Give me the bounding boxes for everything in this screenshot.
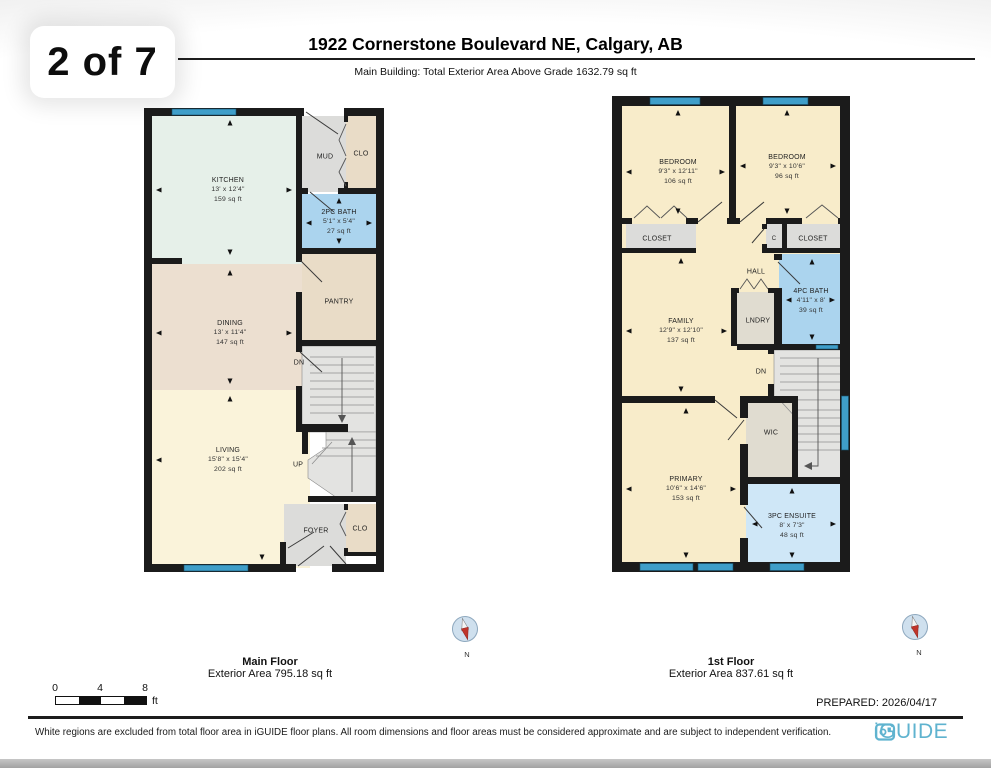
room-label-bedroom-left: BEDROOM 9'3" x 12'11" 106 sq ft — [658, 158, 697, 186]
iguide-logo: iGUIDE — [874, 720, 948, 744]
room-label-laundry: LNDRY — [746, 316, 771, 325]
room-label-family: FAMILY 12'9" x 12'10" 137 sq ft — [659, 317, 703, 345]
main-floor-caption: Main Floor Exterior Area 795.18 sq ft — [208, 656, 332, 680]
room-label-dining: DINING 13' x 11'4" 147 sq ft — [214, 319, 247, 347]
room-label-4pc-bath: 4PC BATH 4'11" x 8' 39 sq ft — [793, 287, 828, 315]
page-title: 1922 Cornerstone Boulevard NE, Calgary, … — [0, 34, 991, 55]
room-label-closet-right: CLOSET — [798, 234, 827, 243]
room-label-clo-bottom: CLO — [353, 524, 368, 533]
room-label-pantry: PANTRY — [325, 297, 354, 306]
page-subtitle: Main Building: Total Exterior Area Above… — [0, 66, 991, 78]
room-label-wic: WIC — [764, 428, 778, 437]
room-label-closet-left: CLOSET — [642, 234, 671, 243]
room-label-foyer: FOYER — [303, 526, 328, 535]
room-label-bedroom-right: BEDROOM 9'3" x 10'6" 96 sq ft — [768, 153, 806, 181]
scale-bar-unit: ft — [152, 695, 158, 707]
stairs-dn-label-main: DN — [294, 358, 305, 367]
room-label-living: LIVING 15'8" x 15'4" 202 sq ft — [208, 446, 248, 474]
first-floor-plan — [608, 92, 858, 588]
room-label-clo-top: CLO — [354, 149, 369, 158]
room-label-closet-small: C — [772, 235, 777, 243]
room-label-primary: PRIMARY 10'6" x 14'6" 153 sq ft — [666, 475, 706, 503]
room-label-2pc-bath: 2PC BATH 5'1" x 5'4" 27 sq ft — [321, 208, 356, 236]
iguide-logo-icon — [874, 721, 897, 743]
prepared-date: PREPARED: 2026/04/17 — [816, 697, 937, 709]
scale-tick-4: 4 — [97, 682, 103, 694]
room-label-hall: HALL — [747, 267, 765, 276]
scale-bar: 0 4 8 ft — [50, 682, 170, 705]
bottom-edge-strip — [0, 759, 991, 768]
stairs-up-label-main: UP — [293, 460, 303, 469]
compass-main-floor: N — [448, 613, 484, 661]
scale-tick-0: 0 — [52, 682, 58, 694]
scale-bar-ticks: 0 4 8 — [50, 682, 170, 694]
compass-n-label: N — [464, 650, 469, 659]
footer-divider — [28, 716, 963, 719]
floor-plan-page: 2 of 7 1922 Cornerstone Boulevard NE, Ca… — [0, 0, 991, 768]
footer-disclaimer: White regions are excluded from total fl… — [35, 727, 831, 738]
scale-bar-segments — [55, 696, 147, 705]
room-label-3pc-ensuite: 3PC ENSUITE 8' x 7'3" 48 sq ft — [768, 512, 816, 540]
room-label-kitchen: KITCHEN 13' x 12'4" 159 sq ft — [211, 176, 244, 204]
stairs-dn-label-first: DN — [756, 367, 767, 376]
title-divider — [178, 58, 975, 60]
room-label-mud: MUD — [317, 152, 334, 161]
first-floor-caption: 1st Floor Exterior Area 837.61 sq ft — [669, 656, 793, 680]
main-floor-plan — [140, 100, 390, 590]
scale-tick-8: 8 — [142, 682, 148, 694]
compass-n-label: N — [916, 648, 921, 657]
compass-first-floor: N — [898, 611, 934, 659]
